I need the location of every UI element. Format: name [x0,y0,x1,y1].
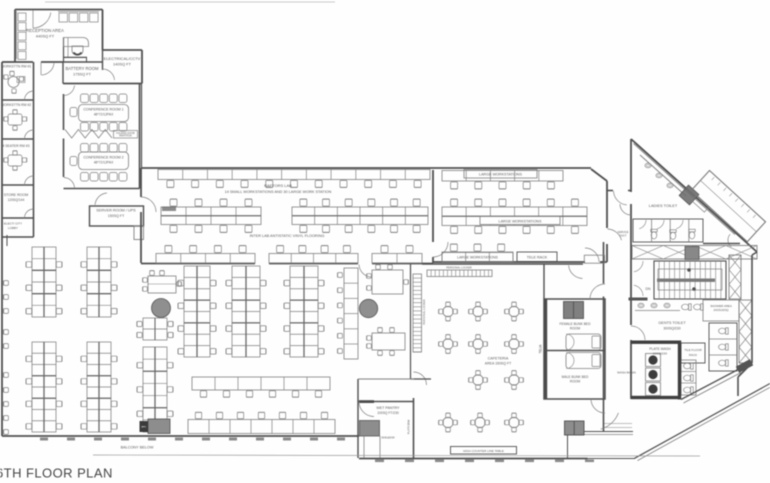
svg-text:PERSONAL LOCKER: PERSONAL LOCKER [422,299,426,325]
svg-text:WET PANTRY: WET PANTRY [376,406,400,410]
svg-text:HIGH COUNTER LINE TABLE: HIGH COUNTER LINE TABLE [463,449,504,453]
svg-text:140SQ FT: 140SQ FT [113,62,132,67]
svg-text:440SQ FT: 440SQ FT [36,34,55,39]
svg-text:TELE RACK: TELE RACK [527,256,548,260]
svg-text:2NOS/20SQ: 2NOS/20SQ [714,308,729,312]
svg-text:CAFETERIA: CAFETERIA [488,357,509,361]
svg-text:PLATE WASH: PLATE WASH [649,347,671,351]
svg-text:AREA 150SQ FT: AREA 150SQ FT [485,362,512,366]
svg-text:BATTERY ROOM: BATTERY ROOM [65,66,99,71]
svg-text:LARGE WORKSTATIONS: LARGE WORKSTATIONS [479,173,522,177]
svg-text:STORE ROOM: STORE ROOM [4,193,29,197]
svg-text:RACK: RACK [689,353,697,357]
svg-text:PERSONAL LOCKER: PERSONAL LOCKER [446,266,472,270]
svg-text:LARGE WORKSTATIONS: LARGE WORKSTATIONS [457,256,498,260]
svg-text:100SQ FT/230: 100SQ FT/230 [377,411,399,415]
svg-text:150SQ FT: 150SQ FT [108,214,125,218]
svg-text:CONFERENCE ROOM 2: CONFERENCE ROOM 2 [83,156,123,160]
svg-text:ELECTRICAL/CCTV: ELECTRICAL/CCTV [104,56,141,61]
svg-text:48*72/12PAX: 48*72/12PAX [94,113,114,117]
svg-text:RAFTORS LAB: RAFTORS LAB [264,183,292,188]
svg-text:CONFERENCE ROOM 1: CONFERENCE ROOM 1 [83,108,123,112]
svg-text:GENTS TOILET: GENTS TOILET [658,321,686,325]
svg-text:DN: DN [646,287,651,291]
svg-text:RECEPTION AREA: RECEPTION AREA [26,28,64,33]
svg-text:LARGE WORKSTATIONS: LARGE WORKSTATIONS [499,220,542,224]
svg-text:BALCONY BELOW: BALCONY BELOW [121,446,154,450]
svg-text:INTER LAB ANTISTATIC VINYL FLO: INTER LAB ANTISTATIC VINYL FLOORING [250,234,325,238]
svg-text:PLATFORM: PLATFORM [407,419,411,434]
svg-text:MFD: MFD [141,427,146,429]
svg-text:TILE FLOOR: TILE FLOOR [684,348,702,352]
svg-text:SHOWER AREA: SHOWER AREA [710,304,732,308]
svg-text:LADIES TOILET: LADIES TOILET [649,203,678,208]
svg-text:14 SMALL WORKSTATIONS AND 30: 14 SMALL WORKSTATIONS AND 30 LARGE WORK … [225,190,332,194]
svg-text:175SQ FT: 175SQ FT [73,72,92,77]
svg-text:WASH BASIN: WASH BASIN [617,371,636,375]
svg-text:ELECT/ CITY: ELECT/ CITY [4,222,22,226]
svg-text:300SQ/230: 300SQ/230 [663,327,680,331]
svg-text:PARTITION: PARTITION [119,135,132,138]
svg-text:SINK&DISH: SINK&DISH [381,437,395,440]
svg-text:WORKSTTN RM #1: WORKSTTN RM #1 [1,65,31,69]
svg-text:ROOM: ROOM [570,327,581,331]
svg-text:FEMALE BUNK BED: FEMALE BUNK BED [560,322,592,326]
svg-text:6TH FLOOR PLAN: 6TH FLOOR PLAN [0,466,113,481]
svg-text:SERVER ROOM / UPS: SERVER ROOM / UPS [96,209,136,213]
svg-text:4 SEATER RM #3: 4 SEATER RM #3 [2,144,29,148]
svg-text:WORKSTTN RM #2: WORKSTTN RM #2 [1,103,31,107]
svg-text:LOBBY: LOBBY [8,226,18,230]
svg-text:ROOM: ROOM [570,380,581,384]
svg-text:120SQ/144: 120SQ/144 [8,198,25,202]
svg-text:48*72/12PAX: 48*72/12PAX [94,161,114,165]
svg-text:TELIA: TELIA [539,344,543,354]
svg-text:DUCT: DUCT [620,235,627,238]
svg-text:MALE BUNK BED: MALE BUNK BED [562,375,589,379]
